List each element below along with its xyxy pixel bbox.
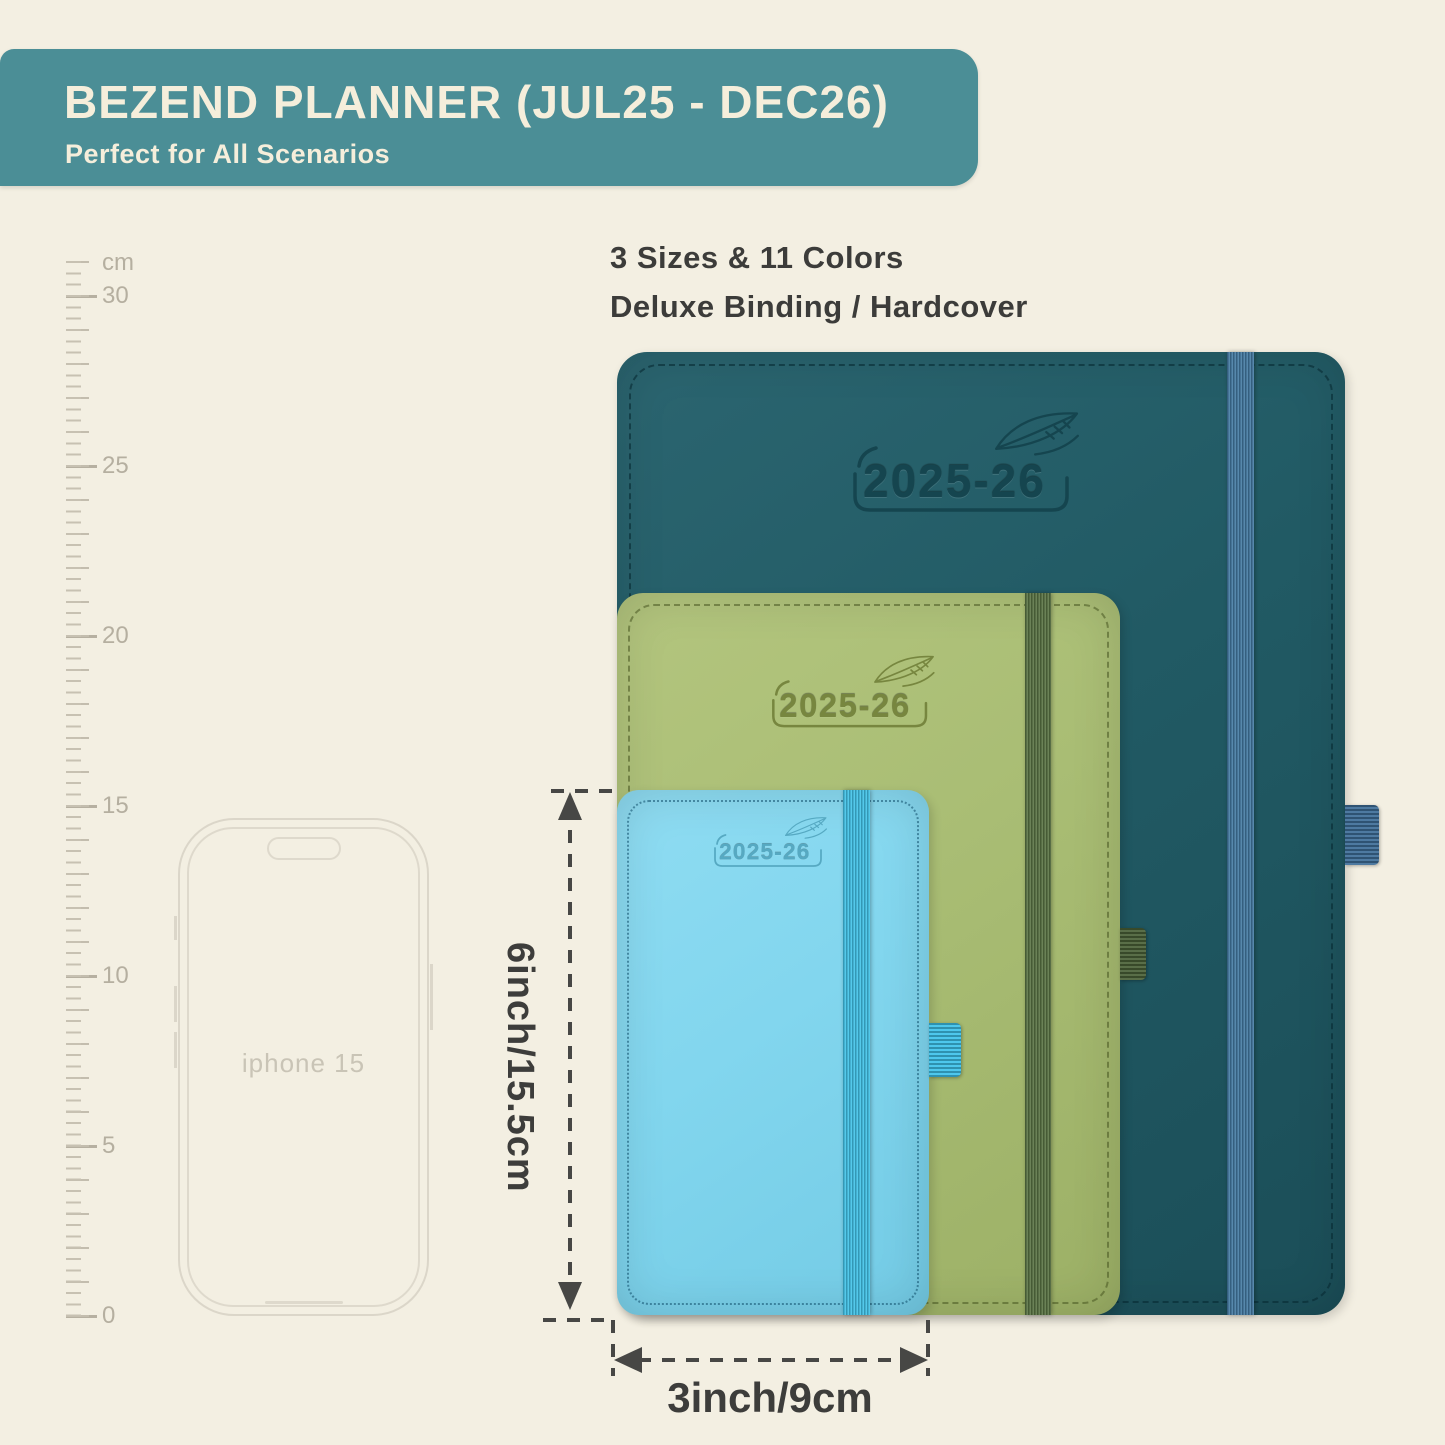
pen-loop (929, 1023, 961, 1077)
arrow-down-icon (558, 1282, 582, 1310)
height-label: 6inch/15.5cm (498, 942, 541, 1193)
stitching (627, 800, 919, 1305)
phone-volume-up-button (174, 986, 177, 1022)
ruler-label-15: 15 (102, 792, 129, 820)
phone-outline: iphone 15 (178, 818, 429, 1316)
height-dimension-line (568, 806, 572, 1296)
phone-volume-down-button (174, 1032, 177, 1068)
width-dimension-line (638, 1358, 904, 1362)
ruler-label-20: 20 (102, 622, 129, 650)
ruler-label-30: 30 (102, 282, 129, 310)
arrow-left-icon (614, 1347, 642, 1373)
pen-loop (1120, 928, 1146, 980)
year-emboss: 2025-26 (849, 414, 1079, 524)
ruler-label-0: 0 (102, 1302, 115, 1330)
banner: BEZEND PLANNER (JUL25 - DEC26) Perfect f… (0, 49, 978, 186)
banner-title: BEZEND PLANNER (JUL25 - DEC26) (64, 75, 889, 129)
arrow-right-icon (900, 1347, 928, 1373)
phone-dynamic-island (267, 837, 341, 860)
headline-sizes-colors: 3 Sizes & 11 Colors (610, 234, 1028, 283)
year-emboss: 2025-26 (769, 657, 935, 736)
ruler-unit-label: cm (102, 249, 134, 277)
year-label: 2025-26 (863, 454, 1046, 508)
elastic-band (1025, 593, 1051, 1315)
phone-power-button (430, 964, 433, 1030)
pen-loop (1345, 805, 1379, 865)
phone-mute-switch (174, 916, 177, 940)
phone-label: iphone 15 (180, 1048, 427, 1079)
ruler-ticks (66, 261, 100, 1319)
arrow-up-icon (558, 792, 582, 820)
ruler-label-5: 5 (102, 1132, 115, 1160)
headline-binding: Deluxe Binding / Hardcover (610, 283, 1028, 332)
banner-subtitle: Perfect for All Scenarios (65, 139, 390, 170)
elastic-band (843, 790, 870, 1315)
planner-small: 2025-26 (617, 790, 929, 1315)
headline: 3 Sizes & 11 Colors Deluxe Binding / Har… (610, 234, 1028, 332)
ruler-label-25: 25 (102, 452, 129, 480)
product-image: BEZEND PLANNER (JUL25 - DEC26) Perfect f… (0, 0, 1445, 1445)
phone-home-bar (265, 1301, 343, 1304)
year-emboss: 2025-26 (712, 818, 827, 873)
ruler: cm 30 25 20 15 10 5 0 (66, 261, 146, 1323)
height-extension-line-bottom (543, 1318, 613, 1322)
year-label: 2025-26 (719, 838, 810, 865)
year-label: 2025-26 (779, 686, 911, 725)
width-label: 3inch/9cm (620, 1374, 920, 1422)
ruler-label-10: 10 (102, 962, 129, 990)
elastic-band (1227, 352, 1254, 1315)
